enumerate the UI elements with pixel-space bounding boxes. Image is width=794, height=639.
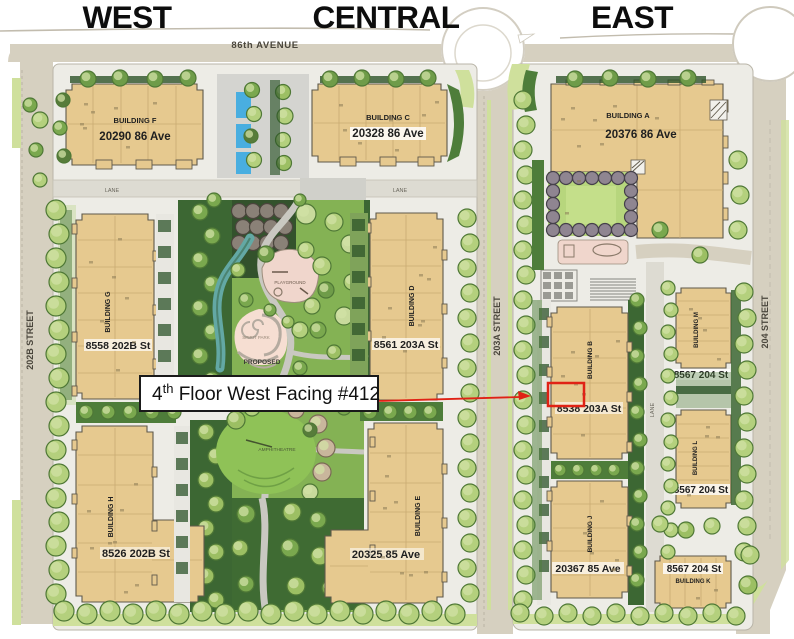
svg-text:BUILDING B: BUILDING B (587, 341, 594, 379)
svg-text:PLAYGROUND: PLAYGROUND (274, 280, 306, 285)
svg-text:8561 203A St: 8561 203A St (374, 339, 439, 351)
svg-text:20328 86 Ave: 20328 86 Ave (352, 128, 423, 140)
svg-text:86th AVENUE: 86th AVENUE (231, 40, 298, 51)
svg-text:EAST: EAST (591, 0, 673, 35)
svg-text:LANE: LANE (105, 188, 120, 194)
svg-text:8558 202B St: 8558 202B St (86, 340, 151, 352)
svg-text:BUILDING E: BUILDING E (415, 495, 422, 536)
svg-text:WEST: WEST (83, 0, 172, 35)
svg-text:20290 86 Ave: 20290 86 Ave (99, 131, 170, 143)
svg-text:202B STREET: 202B STREET (25, 310, 35, 370)
svg-text:20376 86 Ave: 20376 86 Ave (605, 129, 676, 141)
svg-text:8526 202B St: 8526 202B St (102, 548, 170, 560)
svg-text:4th Floor West Facing #412: 4th Floor West Facing #412 (152, 381, 380, 405)
svg-text:BUILDING F: BUILDING F (114, 116, 157, 125)
svg-text:8567 204 St: 8567 204 St (667, 564, 722, 575)
svg-text:BUILDING K: BUILDING K (676, 579, 712, 585)
svg-text:BUILDING A: BUILDING A (606, 111, 650, 120)
svg-text:SPIRIT PARK: SPIRIT PARK (242, 335, 270, 340)
svg-text:CENTRAL: CENTRAL (313, 0, 460, 35)
svg-text:LANE: LANE (650, 402, 656, 417)
svg-text:20367 85 Ave: 20367 85 Ave (555, 563, 620, 575)
svg-text:204 STREET: 204 STREET (760, 295, 770, 349)
svg-text:LANE: LANE (393, 188, 408, 194)
svg-text:PROPOSED: PROPOSED (244, 359, 281, 366)
svg-text:BUILDING G: BUILDING G (105, 291, 112, 333)
svg-text:BUILDING H: BUILDING H (108, 497, 115, 538)
svg-text:20325 85 Ave: 20325 85 Ave (352, 549, 420, 561)
svg-text:BUILDING L: BUILDING L (693, 441, 699, 476)
svg-text:BUILDING J: BUILDING J (587, 515, 594, 552)
svg-text:8567 204 St: 8567 204 St (674, 485, 729, 496)
svg-text:203A STREET: 203A STREET (492, 296, 502, 356)
svg-text:BUILDING D: BUILDING D (409, 286, 416, 327)
svg-text:AMPHITHEATRE: AMPHITHEATRE (258, 447, 295, 453)
svg-text:BUILDING C: BUILDING C (366, 113, 410, 122)
